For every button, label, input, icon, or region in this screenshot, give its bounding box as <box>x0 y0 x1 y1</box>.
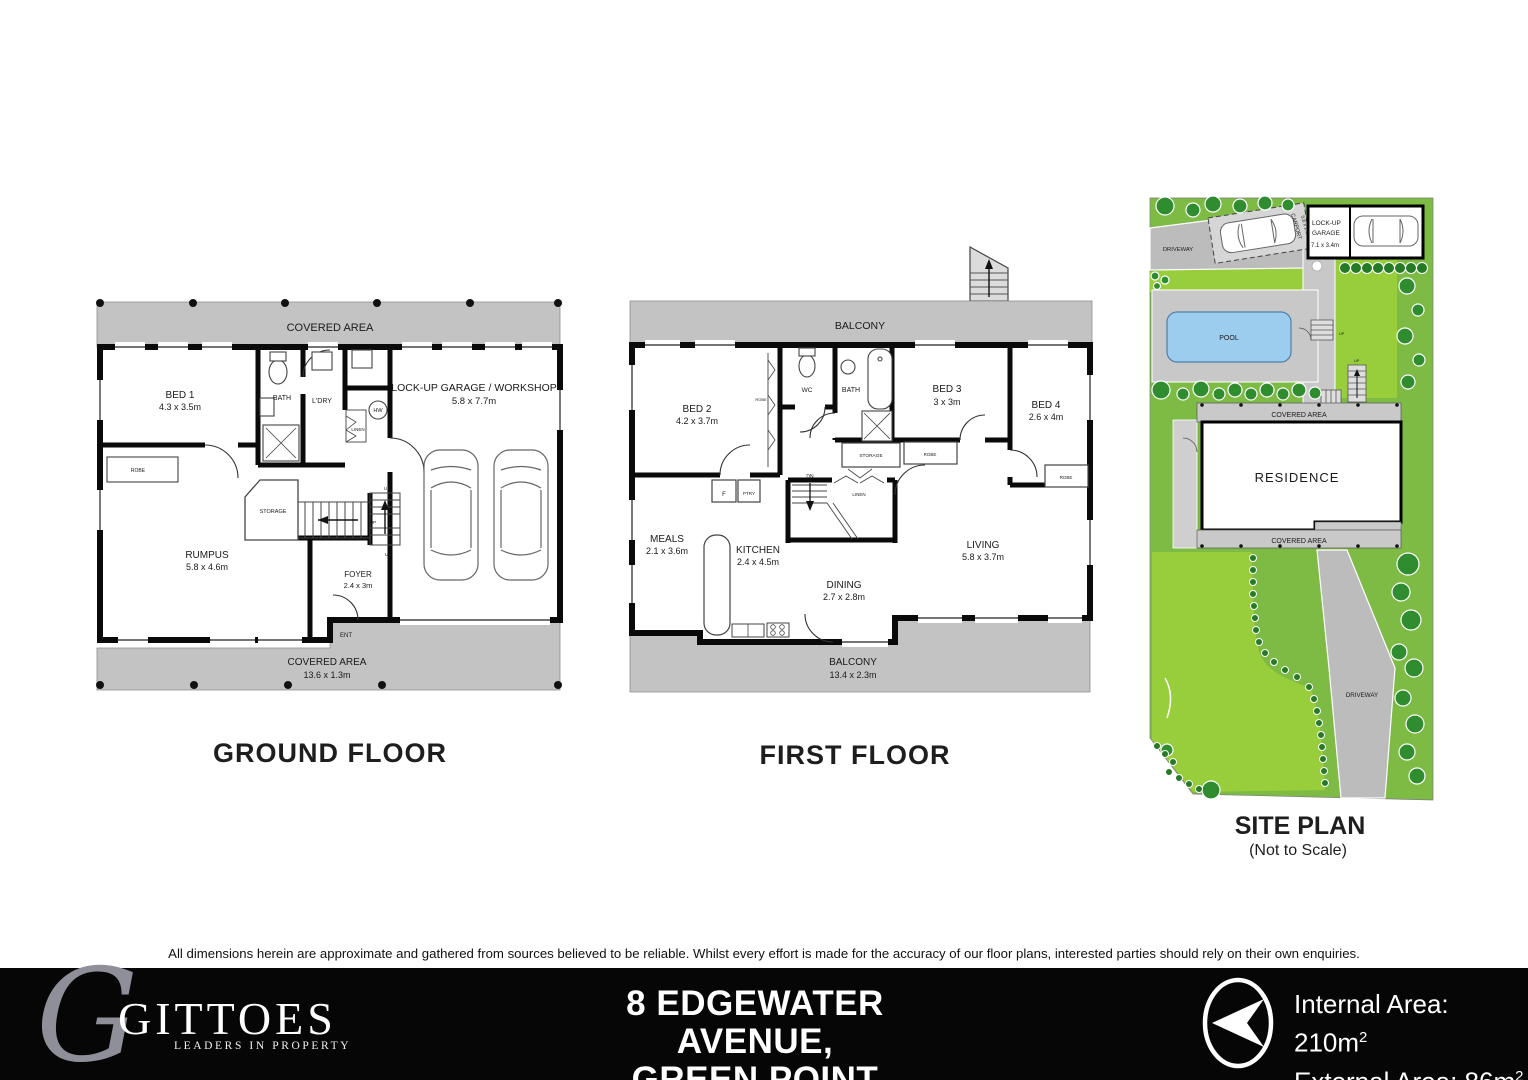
ff-meals-label: MEALS <box>650 534 684 545</box>
ff-living-dims: 5.8 x 3.7m <box>962 552 1004 562</box>
ff-robe-bed3-label: ROBE <box>924 452 937 457</box>
site-plan-title: SITE PLAN <box>1235 812 1366 841</box>
sp-garage-car <box>1354 216 1418 246</box>
sp-pool-label: POOL <box>1219 335 1239 342</box>
first-floor-plan: DN BALCONY BALCONY 13.4 x 2.3m <box>620 235 1100 710</box>
ff-bed3-label: BED 3 <box>933 384 962 395</box>
gf-bed1-dims: 4.3 x 3.5m <box>159 402 201 412</box>
ff-robe-bed2-label: ROBE <box>755 397 767 402</box>
ff-balcony-top: BALCONY <box>630 301 1092 345</box>
sp-residence-block: COVERED AREA RESIDENCE COVERED AREA <box>1173 403 1401 548</box>
internal-area: Internal Area: 210m2 <box>1294 988 1528 1060</box>
sp-garage-dims: 7.1 x 3.4m <box>1311 243 1339 249</box>
ff-robe-bed4-label: ROBE <box>1060 475 1073 480</box>
north-arrow-icon <box>1200 977 1276 1069</box>
ff-linen-label: LINEN <box>852 492 865 497</box>
sp-residence-label: RESIDENCE <box>1255 470 1340 485</box>
gf-rumpus-label: RUMPUS <box>185 550 229 561</box>
ff-bed4-dims: 2.6 x 4m <box>1029 412 1064 422</box>
sp-pool-equipment-dot <box>1312 261 1322 271</box>
gf-foyer-label: FOYER <box>344 570 372 579</box>
sp-pool-area: POOL <box>1152 290 1318 382</box>
brand-name: GITTOES <box>118 992 337 1045</box>
gf-up-label-3: UP <box>385 552 391 557</box>
sp-covered-top-label: COVERED AREA <box>1271 412 1327 419</box>
gf-bed1-label: BED 1 <box>166 390 195 401</box>
site-plan: DRIVEWAY POOL CARPORT 5.6 x 2.5m LOCK- <box>1145 190 1435 830</box>
ground-floor-plan: COVERED AREA COVERED AREA 13.6 x 1.3m <box>90 290 570 710</box>
ff-storage-label: STORAGE <box>859 453 882 459</box>
first-floor-title: FIRST FLOOR <box>760 740 951 771</box>
sp-garage-label-1: LOCK-UP <box>1312 220 1341 227</box>
ff-bath-label: BATH <box>842 387 860 394</box>
ff-balcony-bottom-dims: 13.4 x 2.3m <box>829 670 876 680</box>
gf-rumpus-dims: 5.8 x 4.6m <box>186 562 228 572</box>
gf-car-right <box>494 450 548 580</box>
sp-up-label-1: UP <box>1339 332 1345 336</box>
ff-kitchen-dims: 2.4 x 4.5m <box>737 557 779 567</box>
ff-pantry-label: PTRY <box>743 491 755 496</box>
gf-robe-label: ROBE <box>131 468 146 474</box>
sp-driveway-top-label: DRIVEWAY <box>1163 247 1193 253</box>
gf-ent-label: ENT <box>340 633 352 639</box>
gf-linen-label: LINEN <box>351 427 364 432</box>
ground-floor-title: GROUND FLOOR <box>213 738 447 769</box>
gf-garage-label: LOCK-UP GARAGE / WORKSHOP <box>391 382 557 394</box>
ff-dining-label: DINING <box>827 580 862 591</box>
gf-storage-label: STORAGE <box>260 509 287 515</box>
address-line-1: 8 EDGEWATER AVENUE, <box>560 985 950 1061</box>
address-line-2: GREEN POINT <box>560 1061 950 1080</box>
gf-covered-bottom-dims: 13.6 x 1.3m <box>303 670 350 680</box>
area-summary: Internal Area: 210m2 External Area: 86m2 <box>1294 988 1528 1080</box>
external-area: External Area: 86m2 <box>1294 1060 1528 1080</box>
gf-hw-label: HW <box>373 408 383 414</box>
ff-bed4-label: BED 4 <box>1032 400 1061 411</box>
gf-up-label-1: UP <box>384 486 390 491</box>
ff-balcony-bottom-label: BALCONY <box>829 657 877 668</box>
ff-fridge-label: F <box>722 492 726 498</box>
ff-dn-label: DN <box>806 474 814 480</box>
ff-bed3-dims: 3 x 3m <box>933 397 960 407</box>
ff-meals-dims: 2.1 x 3.6m <box>646 546 688 556</box>
sp-garage-label-2: GARAGE <box>1312 230 1340 237</box>
gf-garage-dims: 5.8 x 7.7m <box>452 396 496 407</box>
disclaimer-text: All dimensions herein are approximate an… <box>0 946 1528 961</box>
ff-kitchen-label: KITCHEN <box>736 545 780 556</box>
gf-covered-area-top: COVERED AREA <box>96 299 562 347</box>
gf-foyer-dims: 2.4 x 3m <box>344 581 373 590</box>
ff-balcony-top-label: BALCONY <box>835 320 885 332</box>
sp-driveway-bottom-label: DRIVEWAY <box>1346 692 1378 699</box>
ff-bed2-dims: 4.2 x 3.7m <box>676 416 718 426</box>
gf-bath-label: BATH <box>273 395 291 402</box>
property-address: 8 EDGEWATER AVENUE, GREEN POINT <box>560 985 950 1080</box>
gf-up-label-2: UP <box>370 520 376 525</box>
ff-wc-label: WC <box>802 387 813 394</box>
gf-ldry-label: L'DRY <box>312 398 332 405</box>
ff-living-label: LIVING <box>967 540 1000 551</box>
ff-bed2-label: BED 2 <box>683 404 712 415</box>
gf-covered-top-label: COVERED AREA <box>287 322 374 334</box>
ff-dining-dims: 2.7 x 2.8m <box>823 592 865 602</box>
brand-tagline: LEADERS IN PROPERTY <box>174 1040 351 1052</box>
sp-up-label-2: UP <box>1354 359 1360 363</box>
gf-car-left <box>424 450 478 580</box>
sp-covered-bottom-label: COVERED AREA <box>1271 538 1327 545</box>
gf-covered-bottom-label: COVERED AREA <box>288 657 367 668</box>
floorplan-sheet: COVERED AREA COVERED AREA 13.6 x 1.3m <box>0 0 1528 1080</box>
site-plan-subtitle: (Not to Scale) <box>1249 842 1347 860</box>
